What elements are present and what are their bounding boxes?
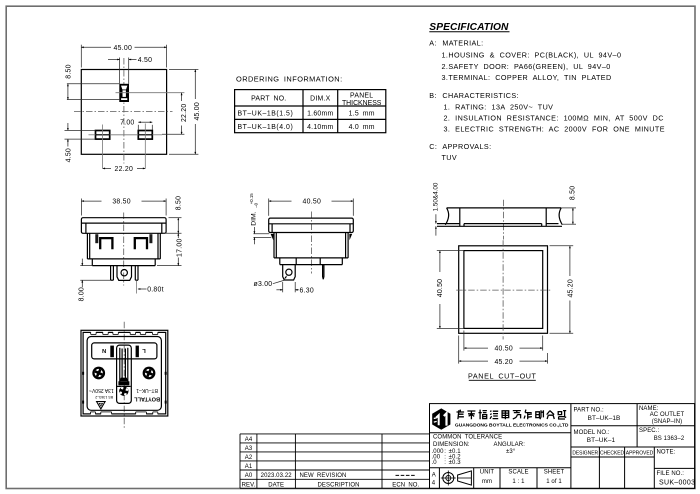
svg-text:7.00: 7.00 [120, 120, 134, 127]
svg-text:8.00: 8.00 [79, 287, 86, 301]
svg-text:1 of 1: 1 of 1 [546, 479, 562, 485]
svg-text:1 : 1: 1 : 1 [512, 479, 525, 485]
svg-text:ANGULAR:: ANGULAR: [494, 442, 526, 448]
svg-text:ø3.00: ø3.00 [254, 281, 273, 288]
svg-text:1.60mm: 1.60mm [307, 111, 333, 118]
svg-text:THICKNESS: THICKNESS [342, 100, 382, 107]
svg-text:4.50: 4.50 [65, 148, 72, 162]
svg-text:SHEET: SHEET [544, 470, 565, 476]
svg-text:BT–UK–1: BT–UK–1 [587, 437, 616, 444]
svg-text:38.50: 38.50 [112, 199, 131, 206]
svg-text:L: L [142, 347, 146, 353]
svg-text:UNIT: UNIT [480, 470, 495, 476]
svg-text:4: 4 [432, 481, 436, 487]
svg-text:8.50: 8.50 [176, 196, 183, 210]
svg-text:0.80t: 0.80t [147, 286, 164, 293]
svg-text:±3°: ±3° [506, 449, 516, 455]
svg-text:PANEL: PANEL [350, 92, 373, 99]
svg-text:1. RATING: 13A 250V~ TUV: 1. RATING: 13A 250V~ TUV [444, 102, 554, 111]
svg-text:2023.03.22: 2023.03.22 [261, 473, 293, 479]
svg-text:17.00: 17.00 [177, 238, 184, 257]
svg-text:8.50: 8.50 [570, 186, 577, 200]
svg-text:BT–UK–1: BT–UK–1 [136, 387, 158, 393]
svg-text:22.20: 22.20 [115, 166, 134, 173]
svg-text:MODEL NO.:: MODEL NO.: [574, 430, 610, 436]
svg-text:BS 1363–2: BS 1363–2 [654, 436, 685, 442]
svg-text:DIM.X: DIM.X [310, 95, 331, 102]
svg-text:DIM.: DIM. [251, 211, 258, 225]
svg-text:APPROVED: APPROVED [626, 451, 654, 457]
svg-text:mm: mm [482, 479, 492, 485]
svg-text:1.HOUSING & COVER: PC(BLACK),: 1.HOUSING & COVER: PC(BLACK), UL 94V–0 [442, 50, 622, 59]
svg-text:A1: A1 [245, 464, 253, 470]
svg-text:A0: A0 [245, 473, 253, 479]
svg-text:ECN NO.: ECN NO. [392, 482, 419, 488]
svg-text:ORDERING INFORMATION:: ORDERING INFORMATION: [236, 75, 343, 84]
svg-text:SPEC.:: SPEC.: [639, 428, 660, 434]
svg-text:BT–UK–1B(1.5): BT–UK–1B(1.5) [238, 111, 294, 118]
svg-text:B: CHARACTERISTICS:: B: CHARACTERISTICS: [429, 91, 519, 100]
svg-text:GUANGDONG BOYTALL ELECTRONICS: GUANGDONG BOYTALL ELECTRONICS CO.,LTD [455, 422, 569, 428]
svg-text:45.20: 45.20 [494, 359, 513, 366]
svg-text:BOYTALL: BOYTALL [134, 396, 161, 402]
svg-text:SUK–0003: SUK–0003 [659, 479, 695, 486]
svg-text:2.SAFETY DOOR: PA66(GREEN), UL: 2.SAFETY DOOR: PA66(GREEN), UL 94V–0 [442, 62, 611, 71]
svg-text:COMMON TOLERANCE: COMMON TOLERANCE [433, 434, 502, 440]
svg-text:A2: A2 [245, 455, 253, 461]
svg-text:PART NO.:: PART NO.: [574, 408, 604, 414]
svg-text:40.50: 40.50 [303, 199, 322, 206]
svg-text:DATE: DATE [268, 482, 284, 488]
svg-text:A: MATERIAL:: A: MATERIAL: [429, 39, 483, 48]
svg-text:2. INSULATION RESISTANCE: 100M: 2. INSULATION RESISTANCE: 100MΩ MIN, AT … [444, 114, 664, 123]
svg-text:NOTE:: NOTE: [657, 450, 676, 456]
svg-text:A: A [432, 473, 436, 479]
svg-text:C: APPROVALS:: C: APPROVALS: [429, 142, 491, 151]
svg-text:TUV: TUV [442, 153, 458, 162]
svg-text:1.50&4.00: 1.50&4.00 [432, 182, 439, 211]
svg-text:40.50: 40.50 [437, 279, 444, 298]
svg-text:3.TERMINAL: COPPER ALLOY, TIN: 3.TERMINAL: COPPER ALLOY, TIN PLATED [442, 73, 612, 82]
svg-text:4.50: 4.50 [138, 57, 152, 64]
svg-text:13A 250V~: 13A 250V~ [89, 387, 114, 393]
svg-text:AC OUTLET: AC OUTLET [650, 412, 685, 418]
svg-text:6.30: 6.30 [300, 287, 314, 294]
svg-text:4.0 mm: 4.0 mm [349, 124, 375, 131]
svg-text:+0.15: +0.15 [249, 193, 254, 204]
svg-text:A3: A3 [245, 446, 253, 452]
svg-text:3. ELECTRIC STRENGTH: AC 2000V: 3. ELECTRIC STRENGTH: AC 2000V FOR ONE M… [444, 125, 665, 134]
svg-text:1.5 mm: 1.5 mm [349, 111, 375, 118]
svg-text:DIMENSION:: DIMENSION: [433, 442, 470, 448]
svg-text:(SNAP–IN): (SNAP–IN) [652, 419, 683, 425]
svg-text:–0: –0 [253, 202, 258, 207]
svg-text:PART NO.: PART NO. [251, 95, 286, 102]
svg-text:SCALE: SCALE [508, 470, 528, 476]
svg-text:PANEL CUT–OUT: PANEL CUT–OUT [468, 371, 537, 380]
svg-text:4.10mm: 4.10mm [307, 124, 333, 131]
svg-text:FILE NO.:: FILE NO.: [657, 471, 685, 477]
svg-text:45.20: 45.20 [568, 279, 575, 298]
svg-text:A4: A4 [245, 437, 253, 443]
svg-text:BS 1363–2: BS 1363–2 [95, 395, 113, 399]
svg-text:CHECKED: CHECKED [600, 451, 625, 457]
svg-text:45.00: 45.00 [114, 45, 133, 52]
svg-text:BT–UK–1B(4.0): BT–UK–1B(4.0) [238, 124, 294, 131]
svg-text:N: N [102, 347, 106, 353]
svg-text:BT–UK–1B: BT–UK–1B [588, 415, 621, 422]
svg-text:DESCRIPTION: DESCRIPTION [317, 482, 359, 488]
svg-text:8.50: 8.50 [65, 64, 72, 78]
svg-text:40.50: 40.50 [494, 346, 513, 353]
svg-text:22.20: 22.20 [181, 104, 188, 123]
svg-text:45.00: 45.00 [194, 102, 201, 121]
svg-text:REV.: REV. [242, 482, 256, 488]
svg-text:DESIGNER: DESIGNER [572, 451, 598, 457]
svg-text:NEW REVISION: NEW REVISION [300, 473, 347, 479]
